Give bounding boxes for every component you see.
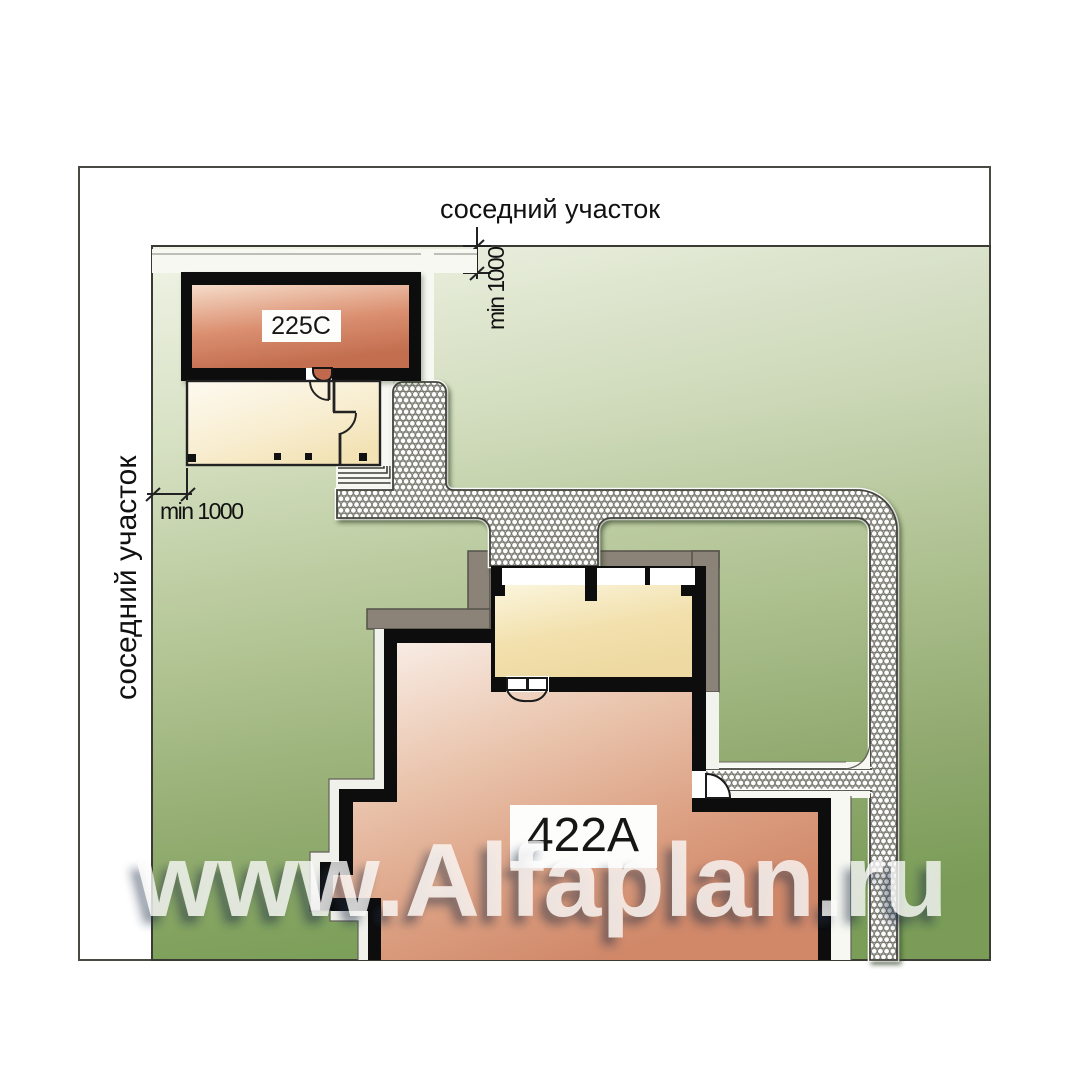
svg-text:min 1000: min 1000	[483, 246, 509, 330]
svg-text:соседний участок: соседний участок	[110, 455, 143, 700]
svg-text:www.Alfaplan.ru: www.Alfaplan.ru	[136, 823, 948, 939]
svg-text:225C: 225C	[271, 312, 331, 340]
svg-text:min 1000: min 1000	[160, 498, 244, 524]
svg-text:соседний участок: соседний участок	[440, 194, 660, 224]
